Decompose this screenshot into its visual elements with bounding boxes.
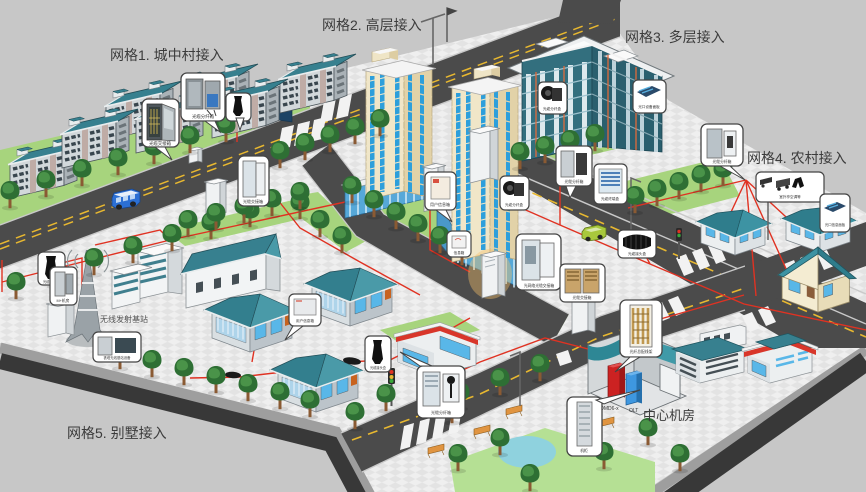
svg-text:无线发射基站: 无线发射基站 <box>100 314 148 324</box>
svg-text:中心机房: 中心机房 <box>643 408 695 423</box>
svg-text:光缆交接箱: 光缆交接箱 <box>243 198 263 204</box>
svg-text:用户信息箱: 用户信息箱 <box>296 318 314 323</box>
svg-text:光缆分纤箱: 光缆分纤箱 <box>192 113 215 120</box>
svg-text:光缆分纤箱: 光缆分纤箱 <box>431 409 451 415</box>
svg-text:OMD6-x: OMD6-x <box>600 406 619 412</box>
svg-text:网格1. 城中村接入: 网格1. 城中村接入 <box>110 47 224 63</box>
svg-text:铁塔无线基站设备: 铁塔无线基站设备 <box>103 355 131 360</box>
svg-text:光缆分纤箱: 光缆分纤箱 <box>713 159 732 164</box>
svg-text:光缆接头盒: 光缆接头盒 <box>628 251 646 256</box>
svg-text:网格3. 多层接入: 网格3. 多层接入 <box>625 29 725 45</box>
svg-text:光网络光缆交接箱: 光网络光缆交接箱 <box>524 283 555 288</box>
svg-text:光缆分纤盒: 光缆分纤盒 <box>543 106 561 111</box>
svg-text:M+机房: M+机房 <box>57 298 70 303</box>
svg-text:光口设备面板: 光口设备面板 <box>638 104 660 109</box>
svg-text:网格2. 高层接入: 网格2. 高层接入 <box>322 17 422 33</box>
svg-text:光缆终端盒: 光缆终端盒 <box>601 196 619 201</box>
svg-text:光缆分纤箱: 光缆分纤箱 <box>565 179 584 184</box>
svg-text:用户信息箱: 用户信息箱 <box>430 201 450 207</box>
svg-text:网格4. 农村接入: 网格4. 农村接入 <box>747 150 847 166</box>
svg-text:光缆分纤盒: 光缆分纤盒 <box>505 202 523 207</box>
svg-text:光口信息面板: 光口信息面板 <box>825 222 846 227</box>
svg-text:室外亭空调等: 室外亭空调等 <box>779 194 801 199</box>
svg-text:网格5. 别墅接入: 网格5. 别墅接入 <box>67 425 167 441</box>
svg-text:光缆接头盒: 光缆接头盒 <box>370 365 387 370</box>
svg-text:信息箱: 信息箱 <box>454 250 465 255</box>
svg-text:光缆交接箱: 光缆交接箱 <box>149 140 172 147</box>
svg-text:机柜: 机柜 <box>580 448 588 453</box>
svg-text:OLT: OLT <box>629 408 638 414</box>
svg-text:光缆交接箱: 光缆交接箱 <box>573 295 592 300</box>
svg-text:光纤总配线架: 光纤总配线架 <box>630 349 653 354</box>
